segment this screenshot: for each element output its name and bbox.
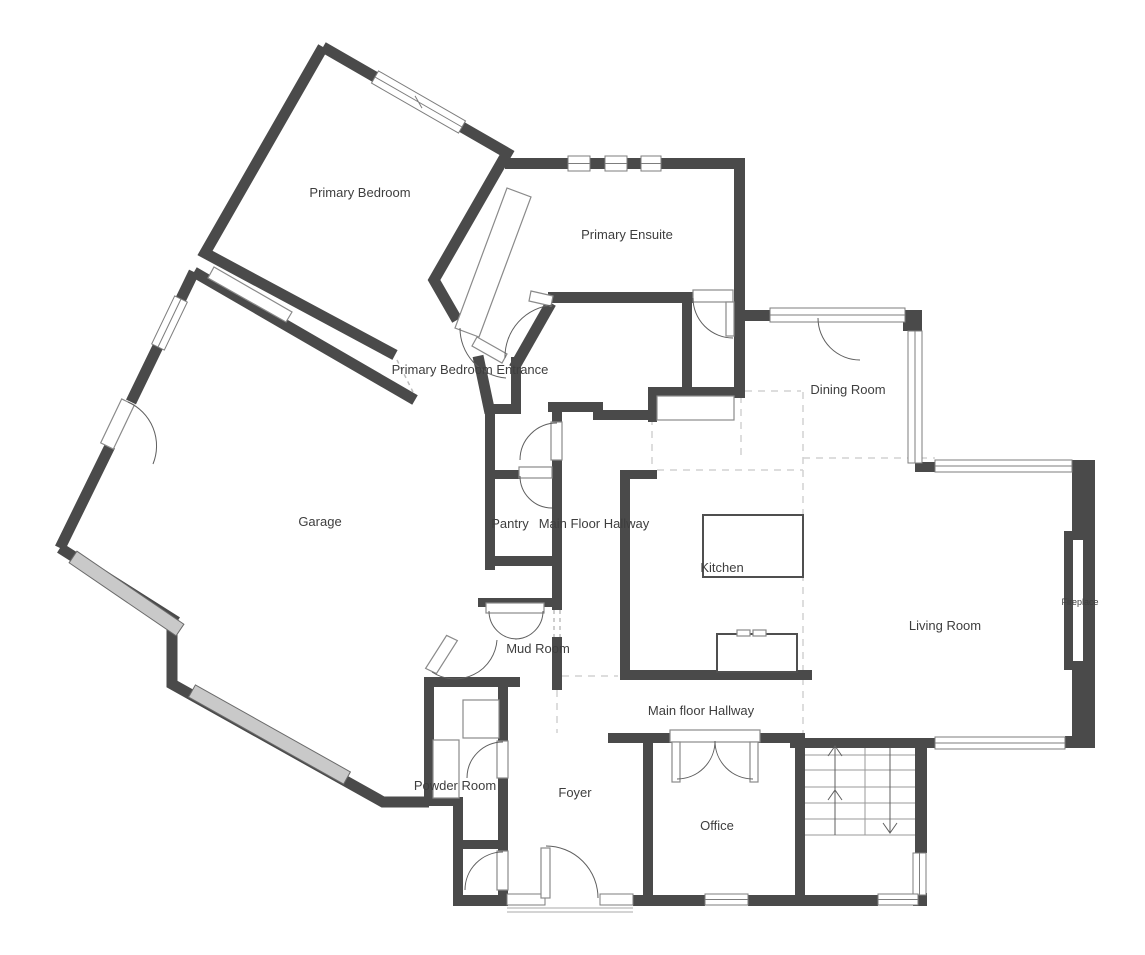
wall-corridor-s3 bbox=[598, 410, 650, 420]
wall-kitchen-flange bbox=[620, 470, 657, 479]
garage-door-panel-2 bbox=[189, 685, 351, 784]
door-arc-office-left bbox=[677, 741, 715, 779]
wall-hall-closet-top bbox=[648, 387, 738, 396]
floor-plan-svg: Primary Bedroom Primary Ensuite Primary … bbox=[0, 0, 1145, 955]
room-label-fireplace: Fireplace bbox=[1061, 597, 1098, 607]
wall-office-west bbox=[643, 733, 653, 905]
door-leaf-dining-hall-open bbox=[726, 302, 734, 336]
wall-dining-ne-corner bbox=[903, 310, 922, 331]
room-label-garage: Garage bbox=[298, 514, 341, 529]
wall-dining-north bbox=[737, 310, 770, 321]
door-arc-office-right bbox=[715, 741, 753, 779]
wall-hallway-west-a bbox=[552, 410, 562, 423]
room-label-dining-room: Dining Room bbox=[810, 382, 885, 397]
door-leaf-pantry bbox=[519, 467, 552, 478]
wall-nook-west bbox=[682, 303, 692, 393]
room-label-kitchen: Kitchen bbox=[700, 560, 743, 575]
room-label-office: Office bbox=[700, 818, 734, 833]
stair-direction bbox=[828, 746, 897, 835]
wall-powder-closet-divider bbox=[458, 840, 503, 849]
hall-closet bbox=[657, 396, 734, 420]
door-arc-mudcloset-right bbox=[515, 611, 543, 639]
kitchen-counter bbox=[717, 634, 797, 672]
door-leaf-mudroom-garage bbox=[426, 635, 458, 673]
powder-vanity bbox=[463, 700, 499, 738]
wall-living-south bbox=[790, 738, 935, 748]
door-leaf-front bbox=[541, 848, 550, 898]
wall-office-south-2 bbox=[748, 895, 878, 906]
wall-hallway-west-b bbox=[552, 460, 562, 610]
rotated-wing-walls bbox=[60, 47, 551, 802]
room-label-powder-room: Powder Room bbox=[414, 778, 496, 793]
wall-pantry-south bbox=[485, 556, 562, 566]
wall-kitchen-west bbox=[620, 470, 630, 679]
wall-fireplace-lower bbox=[1072, 661, 1084, 746]
door-arc-dining-patio bbox=[818, 318, 860, 360]
door-arc-front bbox=[546, 846, 598, 898]
door-arc-pantry bbox=[520, 476, 552, 508]
door-leaf-powder bbox=[497, 741, 508, 778]
room-label-main-floor-hallway-lower: Main floor Hallway bbox=[648, 703, 755, 718]
ensuite-windows bbox=[568, 156, 661, 171]
wall-fireplace-cap-top bbox=[1064, 531, 1084, 540]
room-label-primary-bedroom: Primary Bedroom bbox=[309, 185, 410, 200]
wall-ensuite-bottom bbox=[548, 292, 693, 303]
door-leaf-office-right bbox=[750, 742, 758, 782]
room-label-living-room: Living Room bbox=[909, 618, 981, 633]
door-leaf-garage-entry bbox=[101, 399, 135, 449]
garage-door-panel-1 bbox=[69, 551, 184, 636]
stair-treads bbox=[805, 748, 915, 835]
garage-north-wall bbox=[194, 272, 415, 400]
dashed-mudroom-opening bbox=[554, 610, 560, 637]
window-bedroom-midline bbox=[375, 77, 462, 127]
wall-fireplace-cap-bottom bbox=[1064, 661, 1084, 670]
garage-doors bbox=[69, 551, 350, 784]
staircase bbox=[805, 746, 915, 835]
door-leaf-dining-hall bbox=[693, 290, 733, 302]
wall-mudroom-south bbox=[424, 677, 520, 687]
door-arc-mudcloset-left bbox=[489, 611, 517, 639]
wall-pantry-top bbox=[485, 470, 520, 479]
wall-office-north-1 bbox=[608, 733, 677, 743]
wall-stair-east bbox=[915, 748, 927, 853]
cooktop-burner-2 bbox=[753, 630, 766, 636]
door-leaf-foyer-closet bbox=[497, 851, 508, 890]
windows bbox=[152, 71, 1072, 912]
room-label-primary-bedroom-entrance: Primary Bedroom Entrance bbox=[392, 362, 549, 377]
mudroom-closet bbox=[486, 603, 544, 613]
room-label-mud-room: Mud Room bbox=[506, 641, 570, 656]
door-leaves bbox=[101, 290, 760, 898]
room-label-foyer: Foyer bbox=[558, 785, 592, 800]
room-label-pantry: Pantry bbox=[491, 516, 529, 531]
wall-pantry-west bbox=[485, 404, 495, 570]
wall-fireplace-upper bbox=[1072, 466, 1084, 540]
porch-step-lines bbox=[507, 908, 633, 912]
door-leaf-office-left bbox=[672, 742, 680, 782]
door-leaf-hallway-upper bbox=[551, 422, 562, 460]
wall-powder-west-lower bbox=[453, 806, 463, 906]
ensuite-closet bbox=[455, 188, 531, 337]
wall-ensuite-right bbox=[734, 158, 745, 398]
stair-tread-lines bbox=[805, 748, 915, 835]
floor-plan: Primary Bedroom Primary Ensuite Primary … bbox=[0, 0, 1145, 955]
room-label-main-floor-hallway-upper: Main Floor Hallway bbox=[539, 516, 650, 531]
door-arc-garage-entry bbox=[128, 402, 157, 464]
wall-office-south-1 bbox=[648, 895, 705, 906]
room-label-primary-ensuite: Primary Ensuite bbox=[581, 227, 673, 242]
cooktop-burner-1 bbox=[737, 630, 750, 636]
window-foyer-sidelight-right bbox=[600, 894, 633, 905]
wall-office-east bbox=[795, 733, 805, 905]
office-door-header bbox=[670, 730, 760, 742]
window-foyer-sidelight-left bbox=[507, 894, 545, 905]
wall-south-ext-1 bbox=[453, 895, 507, 906]
